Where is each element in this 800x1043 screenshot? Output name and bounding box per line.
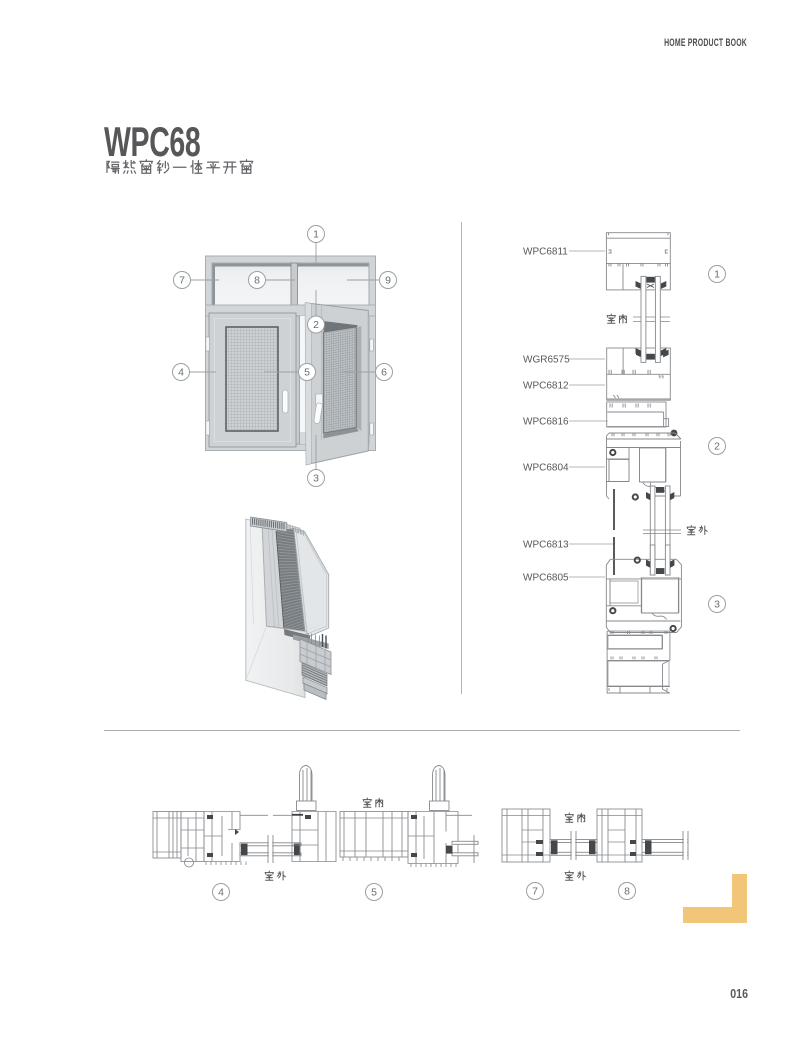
- svg-text:8: 8: [254, 275, 260, 287]
- svg-text:WPC6812: WPC6812: [523, 381, 569, 392]
- svg-text:7: 7: [179, 275, 185, 287]
- svg-text:9: 9: [385, 275, 391, 287]
- svg-text:6: 6: [381, 367, 387, 379]
- svg-text:3: 3: [313, 473, 319, 485]
- svg-text:WPC6811: WPC6811: [523, 247, 568, 258]
- svg-text:1: 1: [313, 229, 319, 241]
- svg-text:1: 1: [714, 269, 720, 281]
- svg-text:5: 5: [304, 367, 310, 379]
- svg-text:3: 3: [714, 599, 720, 611]
- svg-text:4: 4: [218, 887, 224, 899]
- svg-text:WPC6813: WPC6813: [523, 540, 569, 551]
- svg-text:8: 8: [624, 886, 630, 898]
- svg-text:WPC6805: WPC6805: [523, 573, 569, 584]
- svg-text:WPC6804: WPC6804: [523, 463, 569, 474]
- svg-text:2: 2: [714, 441, 720, 453]
- svg-text:WPC6816: WPC6816: [523, 417, 569, 428]
- svg-text:2: 2: [313, 319, 319, 331]
- svg-text:5: 5: [371, 887, 377, 899]
- svg-text:7: 7: [532, 886, 538, 898]
- svg-text:WGR6575: WGR6575: [523, 355, 570, 366]
- svg-text:4: 4: [178, 367, 184, 379]
